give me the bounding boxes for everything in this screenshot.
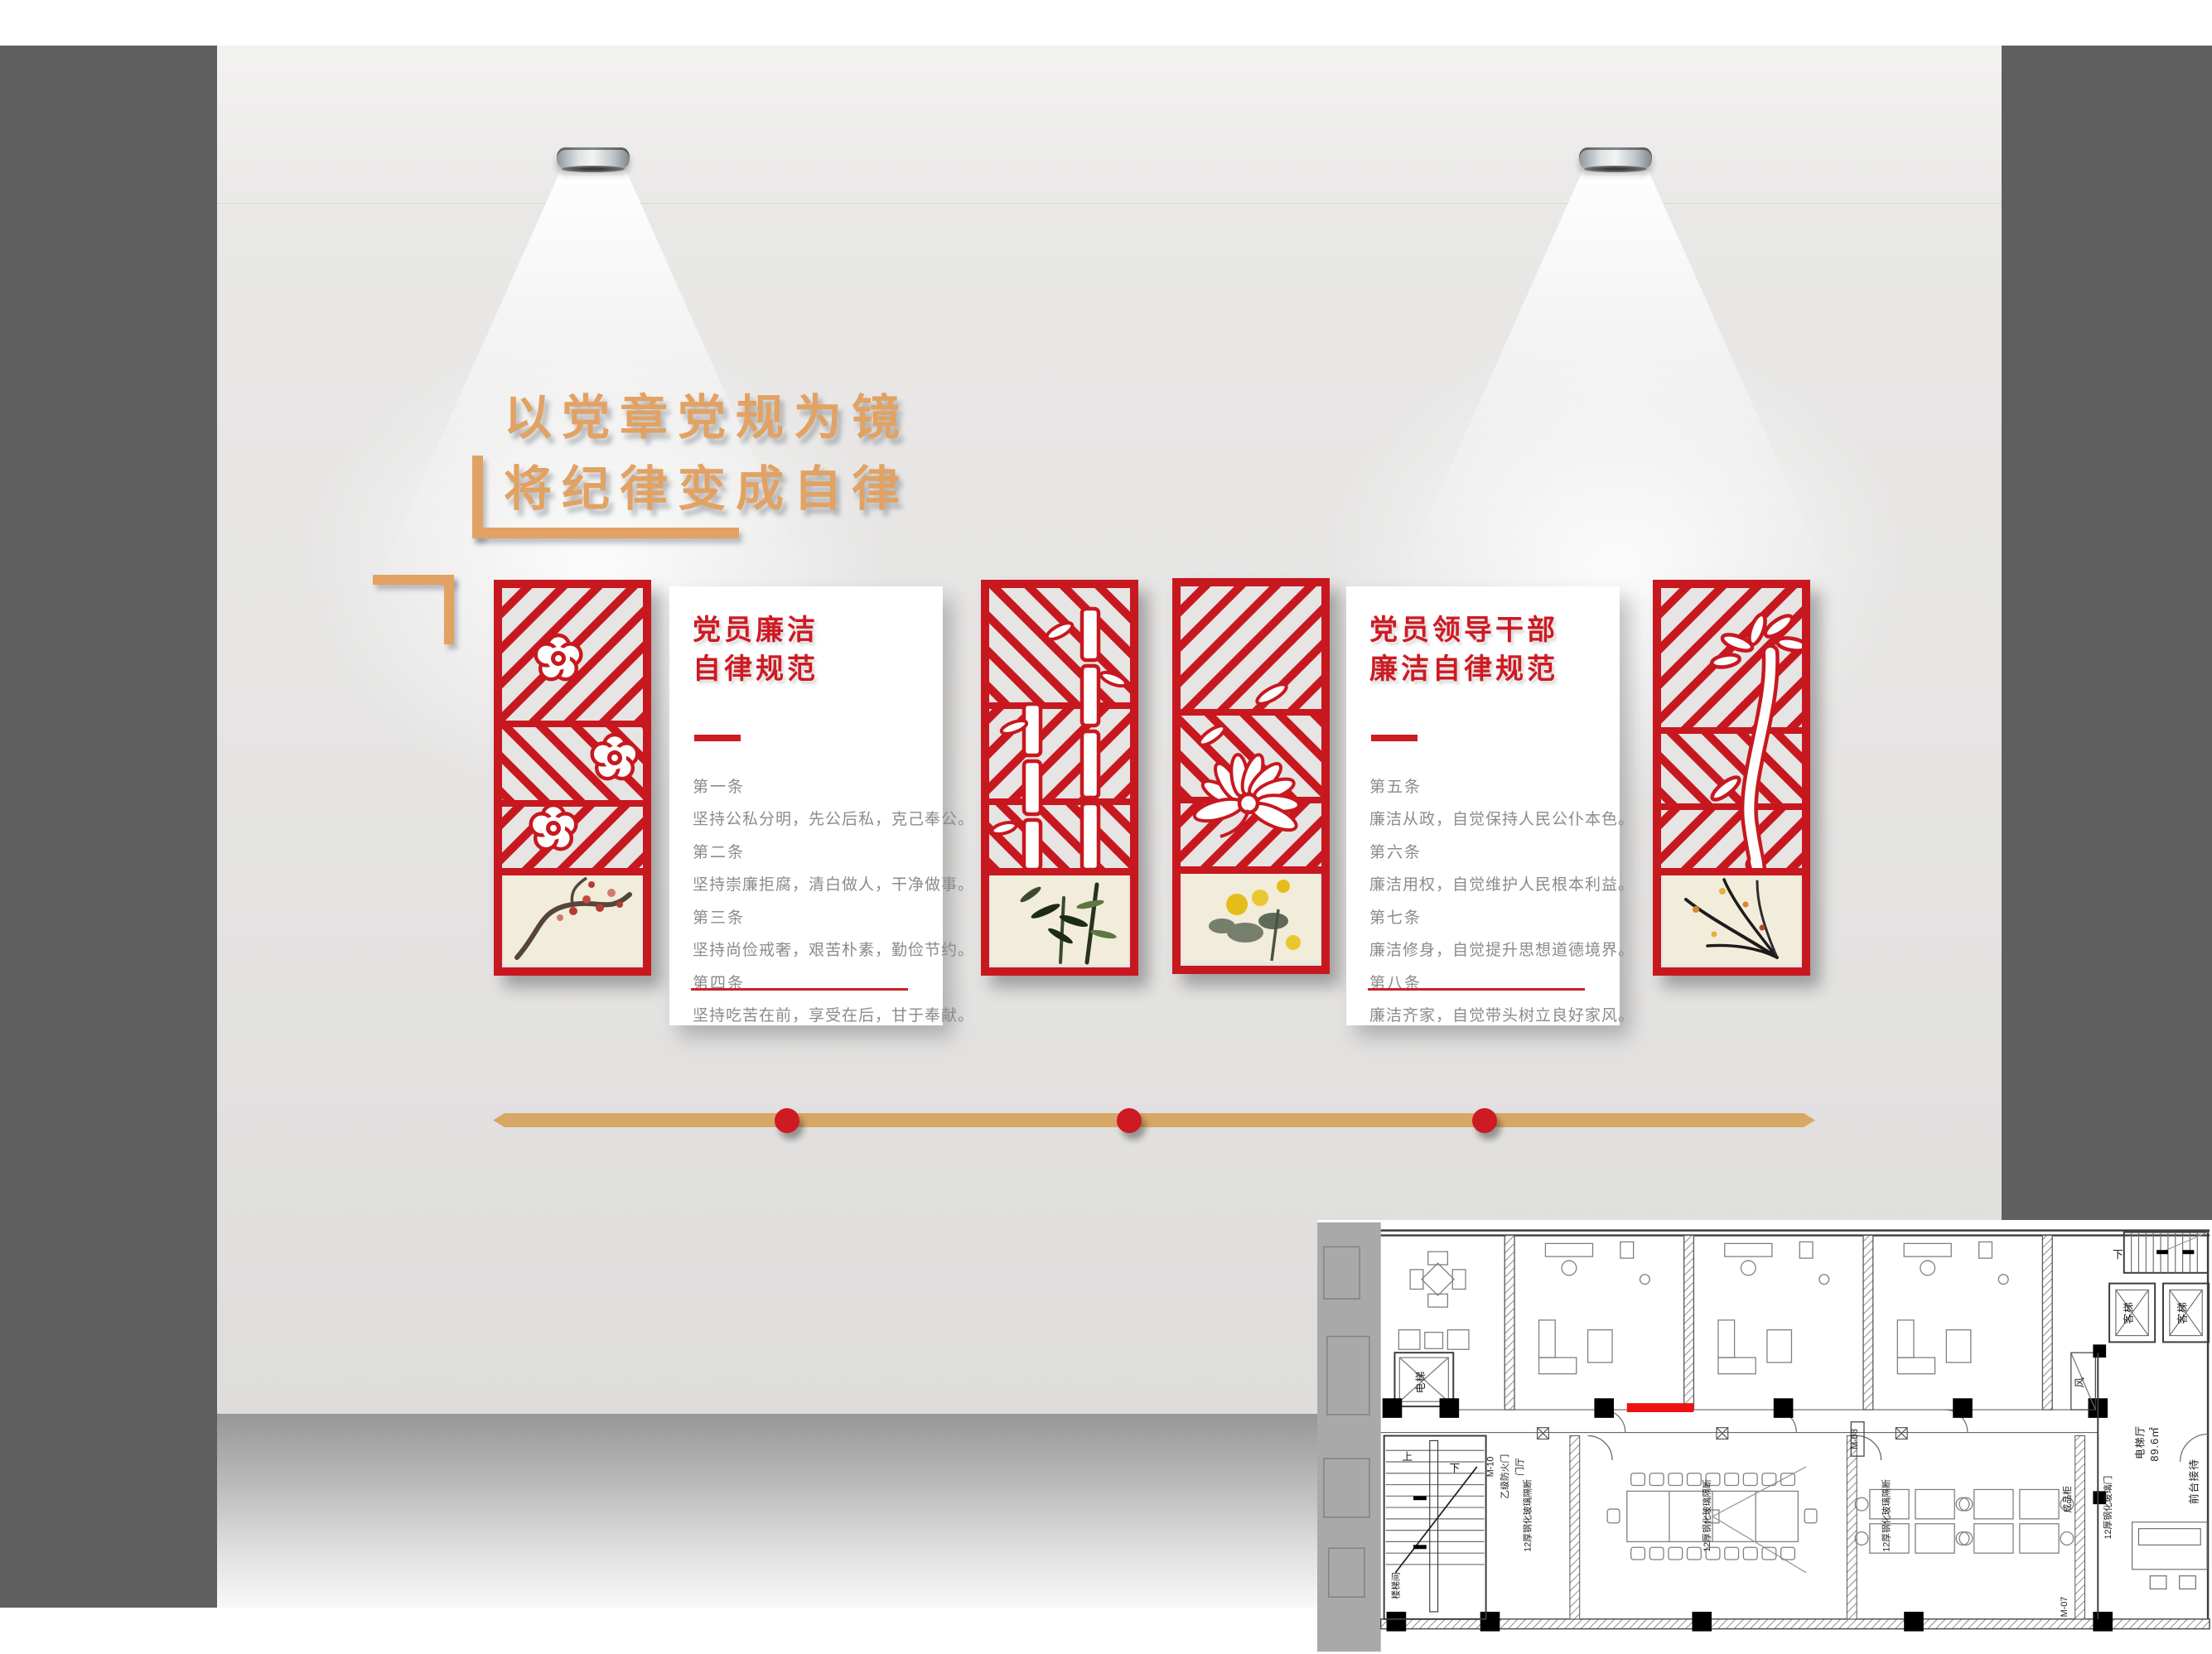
clause-no: 第三条 xyxy=(693,905,923,928)
red-dot-3 xyxy=(1472,1108,1497,1133)
clause-text: 坚持公私分明，先公后私，克己奉公。 xyxy=(693,807,923,829)
floor-plan: 电梯 M-10 乙级防火门 上 下 楼梯间 门厅 12厚钢化玻璃隔断 12厚钢化… xyxy=(1317,1220,2212,1654)
rule-panel-members: 党员廉洁 自律规范 第一条 坚持公私分明，先公后私，克己奉公。 第二条 坚持崇廉… xyxy=(669,586,943,1025)
floor-plan-drawing: 电梯 M-10 乙级防火门 上 下 楼梯间 门厅 12厚钢化玻璃隔断 12厚钢化… xyxy=(1317,1220,2212,1654)
svg-text:12厚钢化玻璃隔断: 12厚钢化玻璃隔断 xyxy=(1522,1479,1533,1552)
plum-lattice-graphic xyxy=(494,580,651,976)
rule-panel-leaders: 党员领导干部 廉洁自律规范 第五条 廉洁从政，自觉保持人民公仆本色。 第六条 廉… xyxy=(1346,586,1620,1025)
clause-text: 廉洁从政，自觉保持人民公仆本色。 xyxy=(1369,807,1600,829)
plan-left-shaded-strip xyxy=(1317,1222,1381,1652)
headline-line2: 将纪律变成自律 xyxy=(504,454,910,525)
svg-text:上: 上 xyxy=(1402,1450,1413,1463)
svg-text:客梯: 客梯 xyxy=(2176,1301,2189,1324)
frame-left-bar xyxy=(0,46,217,1608)
svg-text:客梯: 客梯 xyxy=(2123,1301,2135,1324)
lattice-panel-bamboo xyxy=(981,580,1138,976)
clause-no: 第五条 xyxy=(1369,774,1600,797)
clause-no: 第七条 xyxy=(1369,905,1600,928)
clause-no: 第六条 xyxy=(1369,840,1600,862)
gold-step-horizontal xyxy=(373,575,454,585)
svg-text:门厅: 门厅 xyxy=(1514,1458,1525,1476)
svg-text:成品柜: 成品柜 xyxy=(2062,1486,2073,1513)
plum-ink-painting xyxy=(504,875,641,964)
rule-panel-1-title: 党员廉洁 自律规范 xyxy=(693,611,923,689)
svg-text:下: 下 xyxy=(1449,1462,1461,1474)
svg-text:电梯厅: 电梯厅 xyxy=(2133,1425,2146,1459)
svg-text:前台接待: 前台接待 xyxy=(2187,1459,2200,1504)
gold-line-horizontal xyxy=(472,528,739,538)
clause-no: 第一条 xyxy=(693,774,923,797)
svg-text:M-10: M-10 xyxy=(1485,1457,1495,1478)
svg-text:风: 风 xyxy=(2074,1377,2086,1388)
chrysanthemum-ink-painting xyxy=(1182,873,1320,962)
headline-line1: 以党章党规为镜 xyxy=(504,383,910,454)
chrysanthemum-lattice-graphic xyxy=(1172,578,1330,974)
ceiling-downlight-right xyxy=(1579,147,1652,169)
culture-wall-location-marker xyxy=(1627,1403,1694,1412)
bamboo-lattice-graphic xyxy=(981,580,1138,976)
bamboo-ink-painting xyxy=(991,875,1128,964)
gold-line-vertical xyxy=(472,456,483,538)
red-footer-line xyxy=(691,988,908,991)
orchid-lattice-graphic xyxy=(1653,580,1810,976)
rule-panel-2-title: 党员领导干部 廉洁自律规范 xyxy=(1369,611,1600,689)
wood-accent-bar xyxy=(493,1113,1815,1127)
svg-text:下: 下 xyxy=(2113,1248,2124,1261)
svg-text:89.6㎡: 89.6㎡ xyxy=(2148,1426,2161,1462)
svg-text:12厚钢化玻璃隔断: 12厚钢化玻璃隔断 xyxy=(1701,1479,1712,1552)
svg-text:M-07: M-07 xyxy=(2060,1597,2070,1618)
clause-no: 第二条 xyxy=(693,840,923,862)
svg-text:12厚钢化玻璃隔断: 12厚钢化玻璃隔断 xyxy=(1880,1479,1891,1552)
clause-text: 廉洁齐家，自觉带头树立良好家风。 xyxy=(1369,1003,1600,1025)
red-dot-2 xyxy=(1117,1108,1142,1133)
red-dot-1 xyxy=(775,1108,799,1133)
svg-text:12厚钢化玻璃门: 12厚钢化玻璃门 xyxy=(2102,1476,2113,1540)
rule-panel-1-title-line1: 党员廉洁 xyxy=(693,615,819,646)
rule-panel-2-title-line1: 党员领导干部 xyxy=(1369,615,1558,646)
svg-text:M-08: M-08 xyxy=(1850,1429,1860,1449)
gold-step-vertical xyxy=(444,575,454,644)
svg-text:楼梯间: 楼梯间 xyxy=(1389,1572,1401,1599)
wall-upper-band xyxy=(217,46,2002,204)
clause-text: 坚持吃苦在前，享受在后，甘于奉献。 xyxy=(693,1003,923,1025)
clause-text: 廉洁修身，自觉提升思想道德境界。 xyxy=(1369,938,1600,960)
lattice-panel-plum xyxy=(494,580,651,976)
lattice-panel-orchid xyxy=(1653,580,1810,976)
orchid-ink-painting xyxy=(1663,875,1800,964)
svg-text:电梯: 电梯 xyxy=(1414,1371,1427,1394)
svg-text:乙级防火门: 乙级防火门 xyxy=(1499,1454,1510,1499)
wall-headline: 以党章党规为镜 将纪律变成自律 xyxy=(504,383,910,525)
rule-panel-1-title-line2: 自律规范 xyxy=(693,653,819,685)
culture-wall-mockup: 以党章党规为镜 将纪律变成自律 xyxy=(0,0,2212,1654)
lattice-panel-chrysanthemum xyxy=(1172,578,1330,974)
red-divider xyxy=(694,735,741,741)
red-divider xyxy=(1371,735,1418,741)
clause-text: 坚持尚俭戒奢，艰苦朴素，勤俭节约。 xyxy=(693,938,923,960)
clause-text: 廉洁用权，自觉维护人民根本利益。 xyxy=(1369,872,1600,895)
red-footer-line xyxy=(1368,988,1585,991)
rule-panel-2-title-line2: 廉洁自律规范 xyxy=(1369,653,1558,685)
plan-bottom-wall xyxy=(1381,1619,2210,1629)
clause-text: 坚持崇廉拒腐，清白做人，干净做事。 xyxy=(693,872,923,895)
ceiling-downlight-left xyxy=(557,147,630,169)
